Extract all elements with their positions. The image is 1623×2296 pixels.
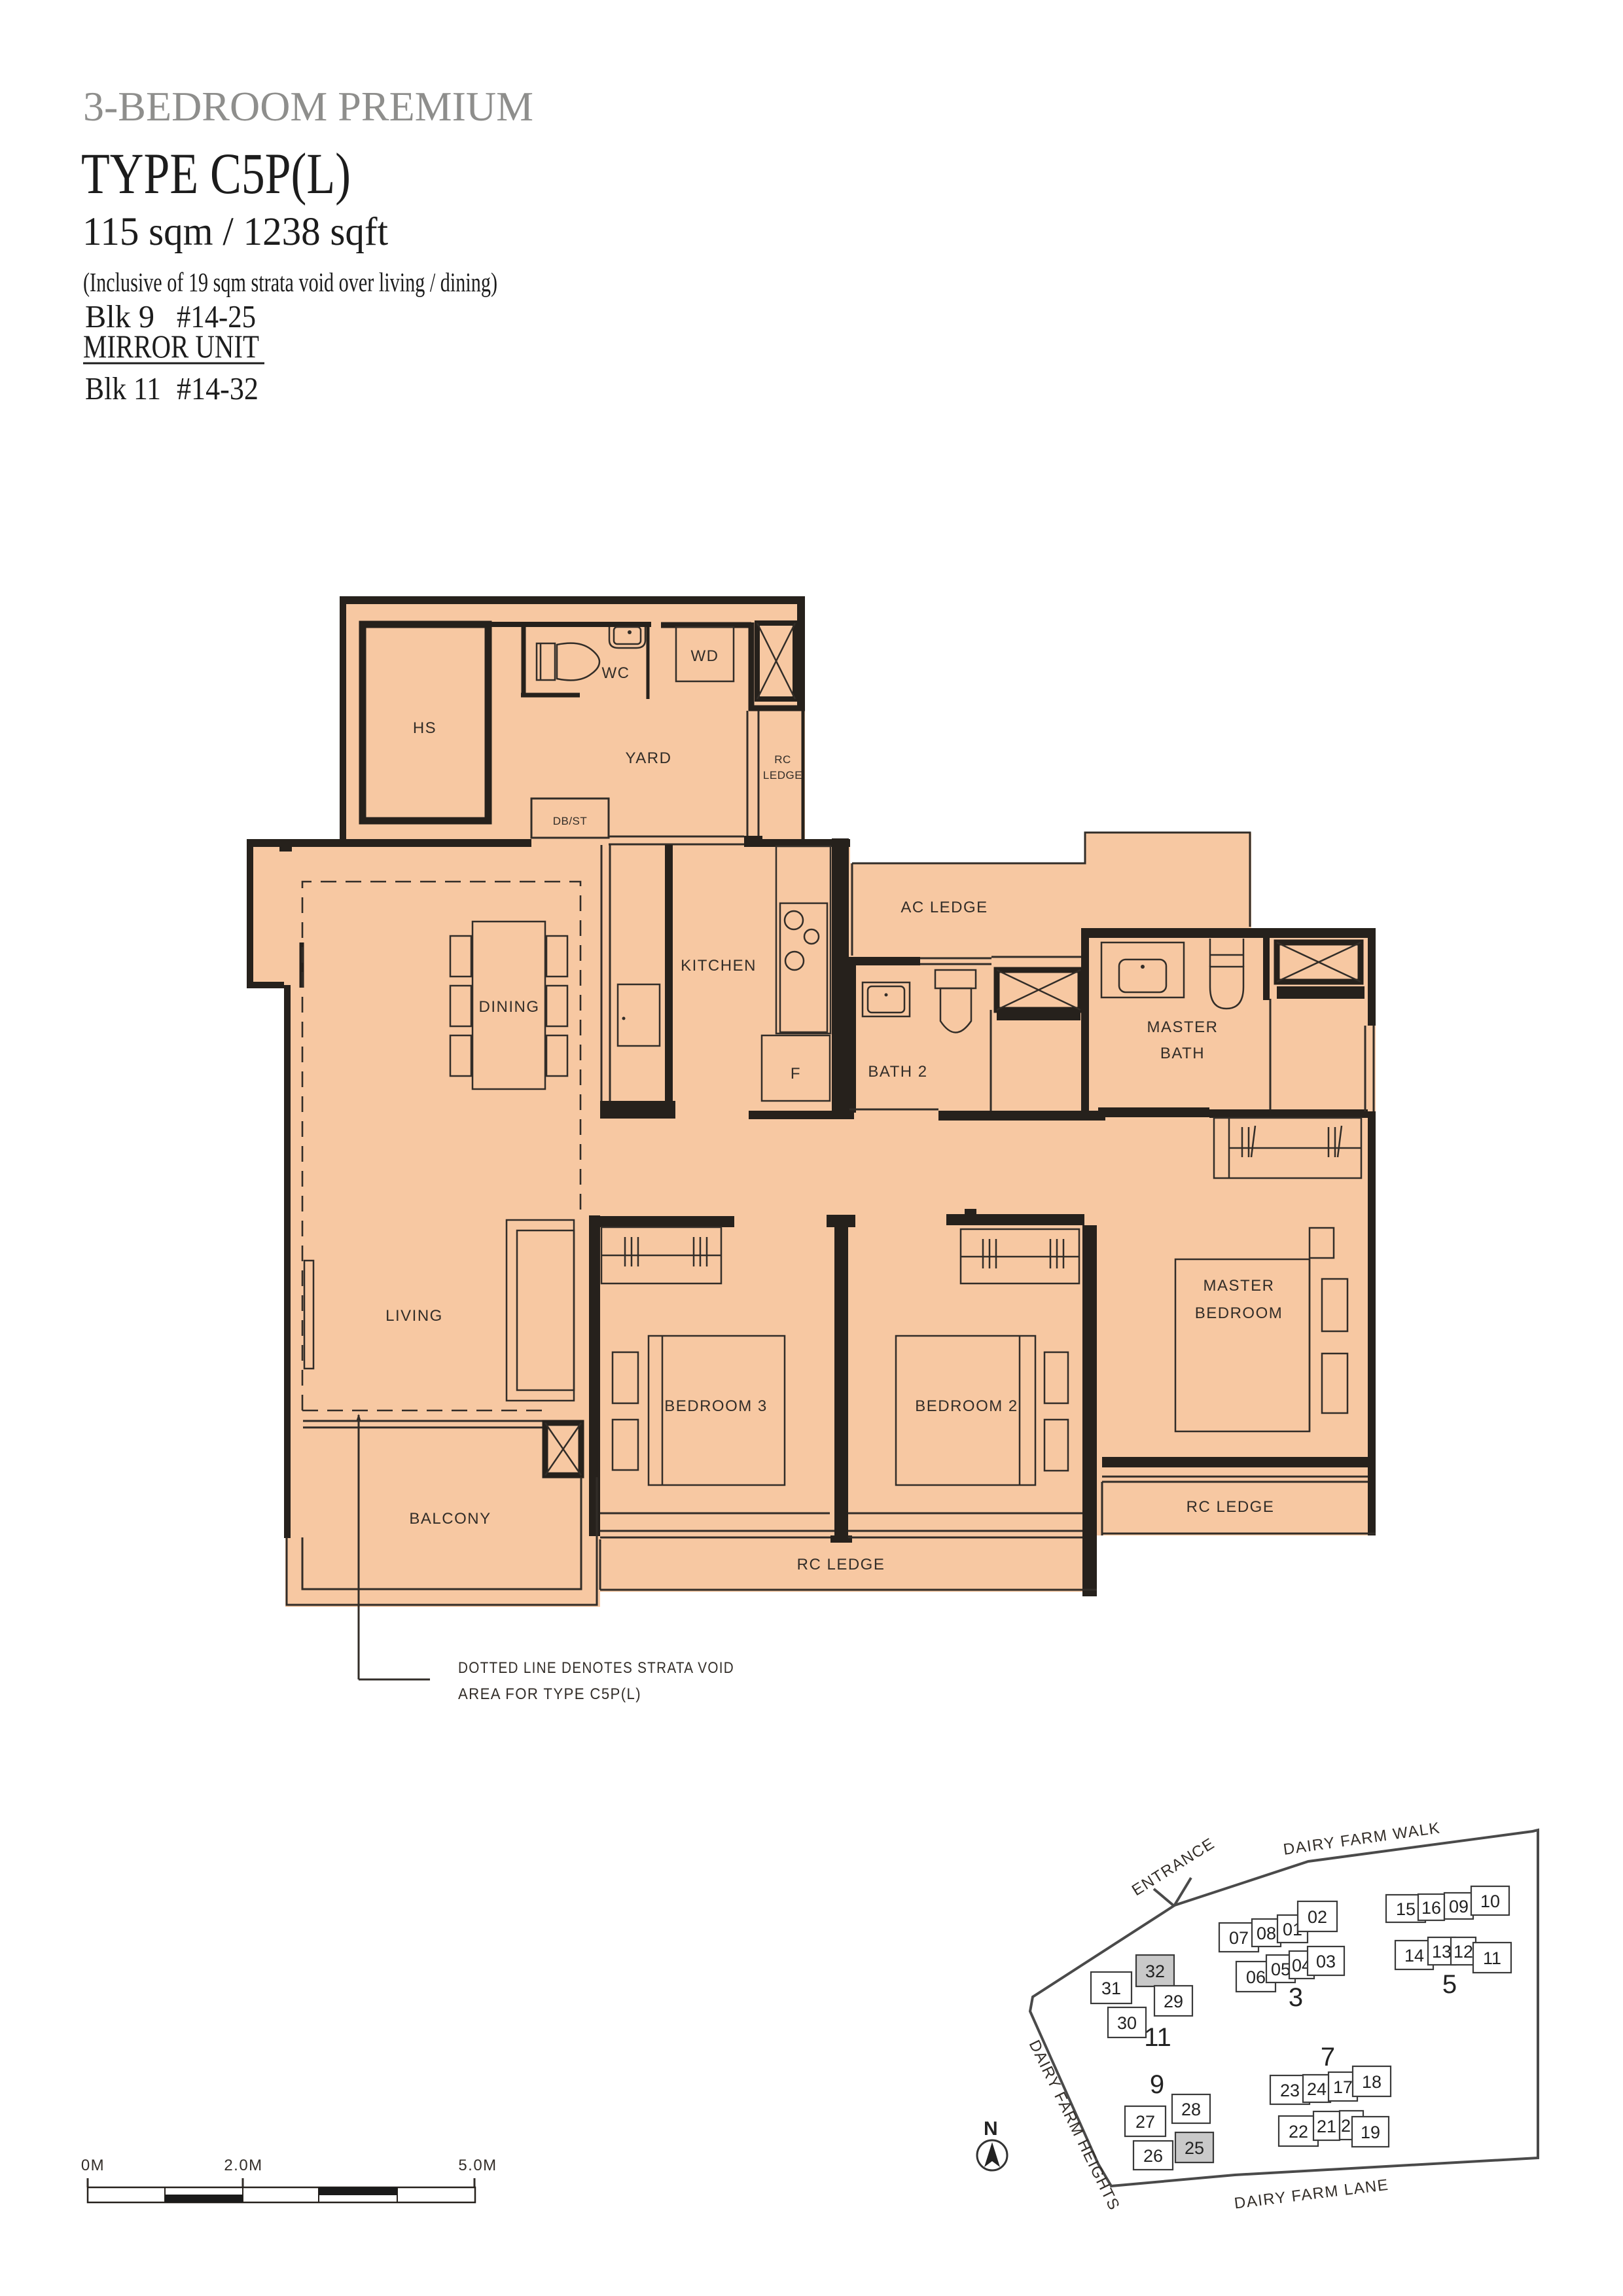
svg-text:BALCONY: BALCONY [409, 1510, 491, 1528]
svg-text:LEDGE: LEDGE [763, 769, 802, 781]
svg-text:31: 31 [1101, 1979, 1121, 1998]
svg-text:DOTTED LINE DENOTES STRATA VOI: DOTTED LINE DENOTES STRATA VOID [458, 1659, 734, 1677]
svg-text:WD: WD [691, 647, 719, 665]
svg-text:22: 22 [1289, 2122, 1308, 2142]
svg-text:07: 07 [1229, 1928, 1249, 1948]
svg-text:29: 29 [1164, 1992, 1183, 2011]
svg-text:24: 24 [1307, 2079, 1327, 2099]
svg-text:0M: 0M [81, 2157, 105, 2174]
svg-text:AREA FOR TYPE C5P(L): AREA FOR TYPE C5P(L) [458, 1685, 641, 1703]
svg-text:30: 30 [1117, 2013, 1137, 2033]
svg-text:08: 08 [1257, 1924, 1276, 1943]
svg-text:10: 10 [1480, 1892, 1500, 1911]
svg-text:11: 11 [1483, 1948, 1501, 1968]
svg-text:12: 12 [1454, 1942, 1473, 1962]
svg-text:14: 14 [1404, 1946, 1424, 1965]
svg-text:MASTER: MASTER [1203, 1277, 1274, 1295]
svg-text:MIRROR UNIT: MIRROR UNIT [83, 328, 259, 365]
svg-text:Blk 11: Blk 11 [85, 370, 161, 406]
svg-text:3-BEDROOM PREMIUM: 3-BEDROOM PREMIUM [83, 84, 533, 130]
svg-text:13: 13 [1432, 1942, 1452, 1962]
svg-text:11: 11 [1144, 2023, 1171, 2052]
svg-text:RC: RC [774, 753, 791, 766]
svg-text:BATH: BATH [1160, 1045, 1205, 1062]
svg-text:2.0M: 2.0M [224, 2157, 262, 2174]
svg-text:BATH 2: BATH 2 [868, 1063, 927, 1081]
svg-text:26: 26 [1143, 2146, 1163, 2166]
svg-text:7: 7 [1321, 2043, 1335, 2072]
svg-text:03: 03 [1316, 1952, 1336, 1971]
svg-text:28: 28 [1181, 2100, 1201, 2119]
svg-text:25: 25 [1185, 2138, 1204, 2158]
svg-text:5.0M: 5.0M [458, 2157, 497, 2174]
svg-text:3: 3 [1289, 1983, 1303, 2012]
svg-text:RC LEDGE: RC LEDGE [1186, 1498, 1275, 1516]
svg-text:LIVING: LIVING [385, 1307, 443, 1325]
svg-text:09: 09 [1449, 1897, 1469, 1916]
svg-text:BEDROOM 2: BEDROOM 2 [915, 1397, 1018, 1415]
svg-text:17: 17 [1333, 2077, 1353, 2097]
svg-text:DINING: DINING [479, 998, 540, 1016]
svg-text:32: 32 [1145, 1962, 1165, 1981]
svg-text:05: 05 [1271, 1960, 1291, 1979]
svg-text:TYPE C5P(L): TYPE C5P(L) [81, 142, 351, 206]
svg-text:WC: WC [602, 664, 630, 682]
svg-text:#14-32: #14-32 [177, 370, 259, 406]
svg-text:KITCHEN: KITCHEN [681, 957, 757, 975]
svg-text:115 sqm / 1238 sqft: 115 sqm / 1238 sqft [82, 210, 388, 254]
svg-text:19: 19 [1361, 2123, 1380, 2142]
svg-text:15: 15 [1396, 1899, 1416, 1919]
svg-text:N: N [984, 2118, 998, 2140]
svg-text:HS: HS [413, 719, 437, 737]
svg-text:AC LEDGE: AC LEDGE [901, 899, 988, 916]
svg-text:(Inclusive of 19 sqm strata vo: (Inclusive of 19 sqm strata void over li… [83, 267, 497, 297]
svg-text:9: 9 [1150, 2070, 1164, 2099]
svg-text:MASTER: MASTER [1147, 1018, 1218, 1036]
svg-text:27: 27 [1135, 2112, 1155, 2132]
svg-text:RC LEDGE: RC LEDGE [797, 1556, 885, 1573]
svg-text:23: 23 [1280, 2081, 1300, 2100]
svg-text:BEDROOM 3: BEDROOM 3 [664, 1397, 768, 1415]
svg-text:5: 5 [1442, 1970, 1457, 1999]
svg-text:21: 21 [1317, 2117, 1336, 2136]
svg-text:06: 06 [1246, 1967, 1266, 1987]
svg-text:18: 18 [1362, 2072, 1382, 2092]
svg-text:16: 16 [1421, 1898, 1441, 1918]
svg-text:YARD: YARD [626, 749, 672, 767]
svg-text:DB/ST: DB/ST [553, 815, 588, 827]
svg-text:F: F [791, 1065, 801, 1083]
svg-text:02: 02 [1308, 1907, 1327, 1927]
svg-text:BEDROOM: BEDROOM [1195, 1304, 1283, 1322]
